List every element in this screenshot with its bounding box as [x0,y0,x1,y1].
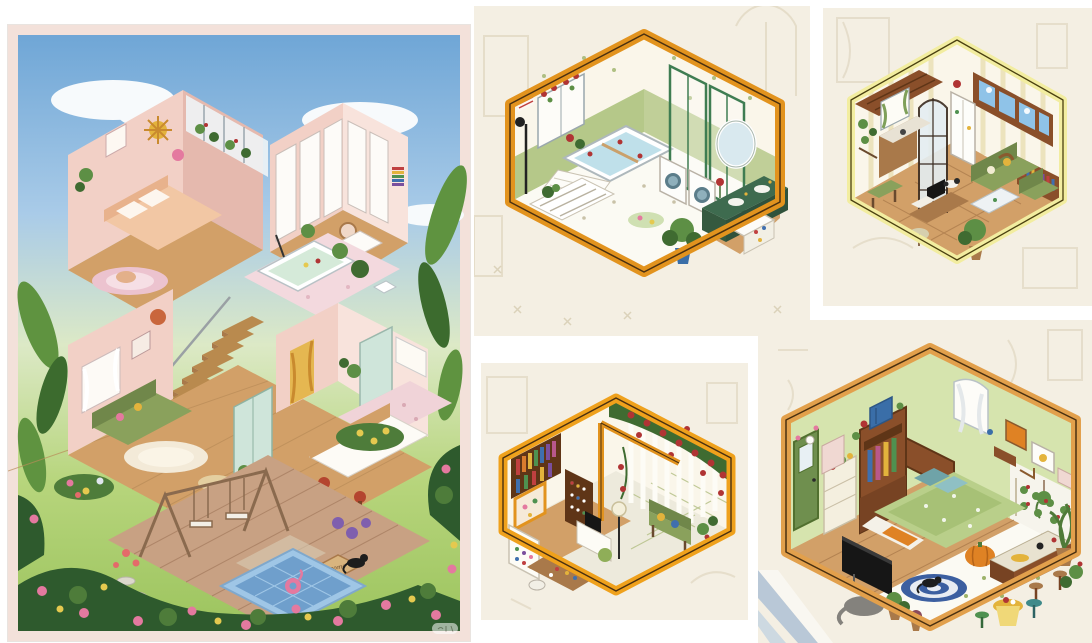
panel-dollhouse[interactable]: welcome [8,25,470,641]
bath-mat [628,212,664,228]
panel-craft-room[interactable] [481,363,748,620]
panel-bedroom[interactable] [758,320,1092,643]
panel-bathroom[interactable] [474,6,810,336]
striped-rug-with-cat [901,574,967,602]
round-mirror [717,121,755,167]
watermark-badge [432,623,458,634]
panel-living-kitchen[interactable] [823,8,1092,306]
rainbow-towels [392,167,404,186]
flower-bed-left [54,474,114,500]
